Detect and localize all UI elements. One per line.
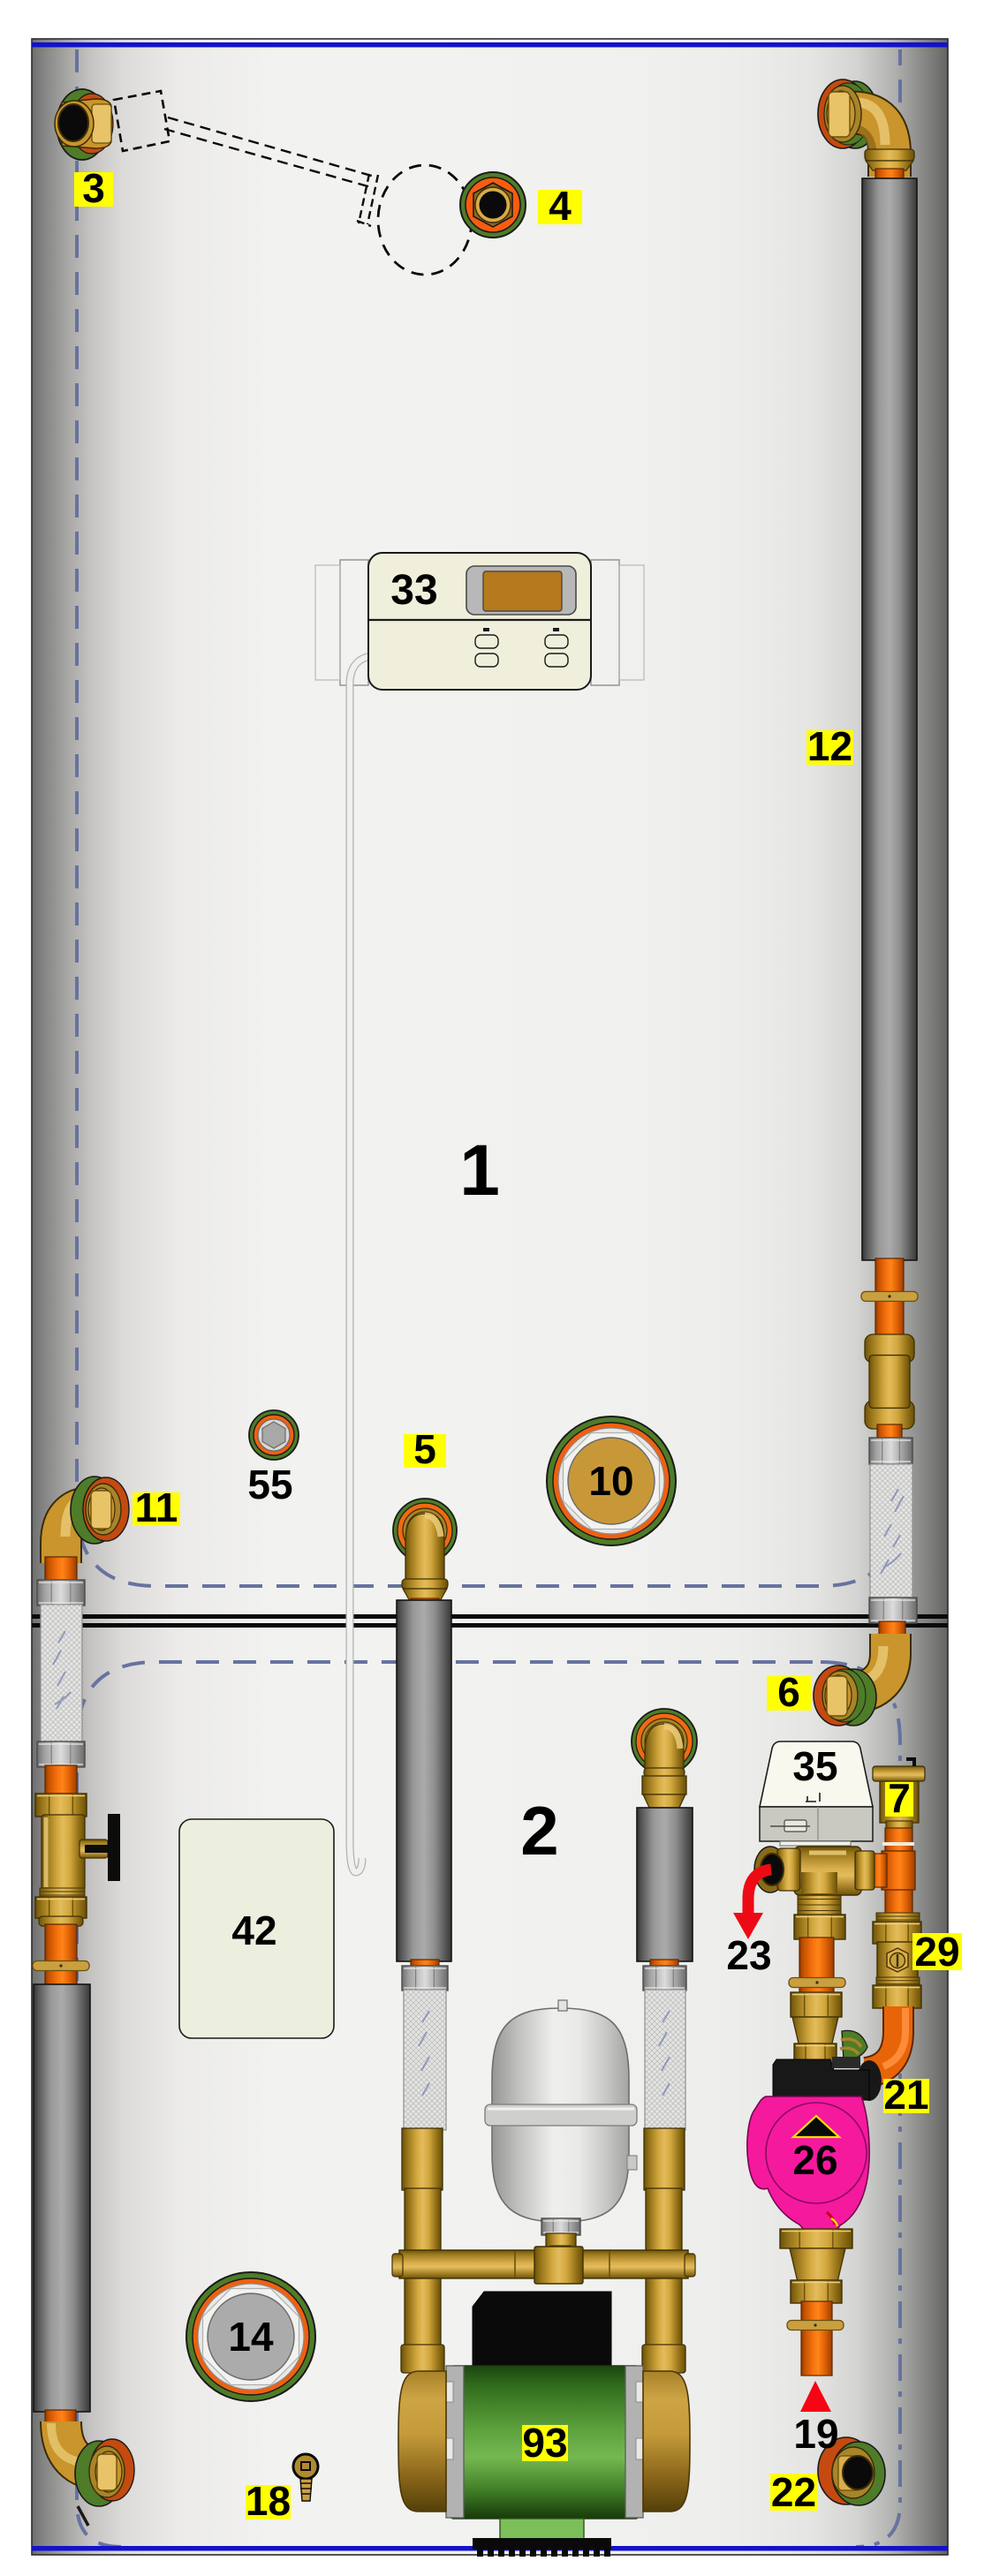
svg-text:18: 18 [246,2478,291,2524]
svg-text:14: 14 [228,2314,274,2360]
svg-text:19: 19 [793,2411,838,2457]
svg-text:2: 2 [520,1792,558,1870]
svg-text:55: 55 [247,1462,292,1507]
svg-text:4: 4 [549,183,572,229]
svg-text:5: 5 [413,1426,436,1472]
svg-text:29: 29 [914,1929,959,1975]
svg-text:93: 93 [522,2420,567,2466]
svg-text:1: 1 [459,1130,500,1211]
svg-text:6: 6 [777,1669,800,1715]
svg-text:33: 33 [390,567,437,614]
svg-text:12: 12 [807,723,852,769]
svg-text:22: 22 [771,2469,816,2515]
svg-text:42: 42 [231,1907,276,1953]
svg-text:21: 21 [883,2072,928,2118]
svg-text:26: 26 [792,2137,837,2183]
svg-text:10: 10 [588,1458,633,1504]
svg-text:35: 35 [792,1743,837,1789]
svg-text:11: 11 [135,1484,178,1530]
svg-text:3: 3 [82,165,105,211]
svg-text:23: 23 [726,1932,771,1978]
svg-text:7: 7 [888,1775,911,1821]
